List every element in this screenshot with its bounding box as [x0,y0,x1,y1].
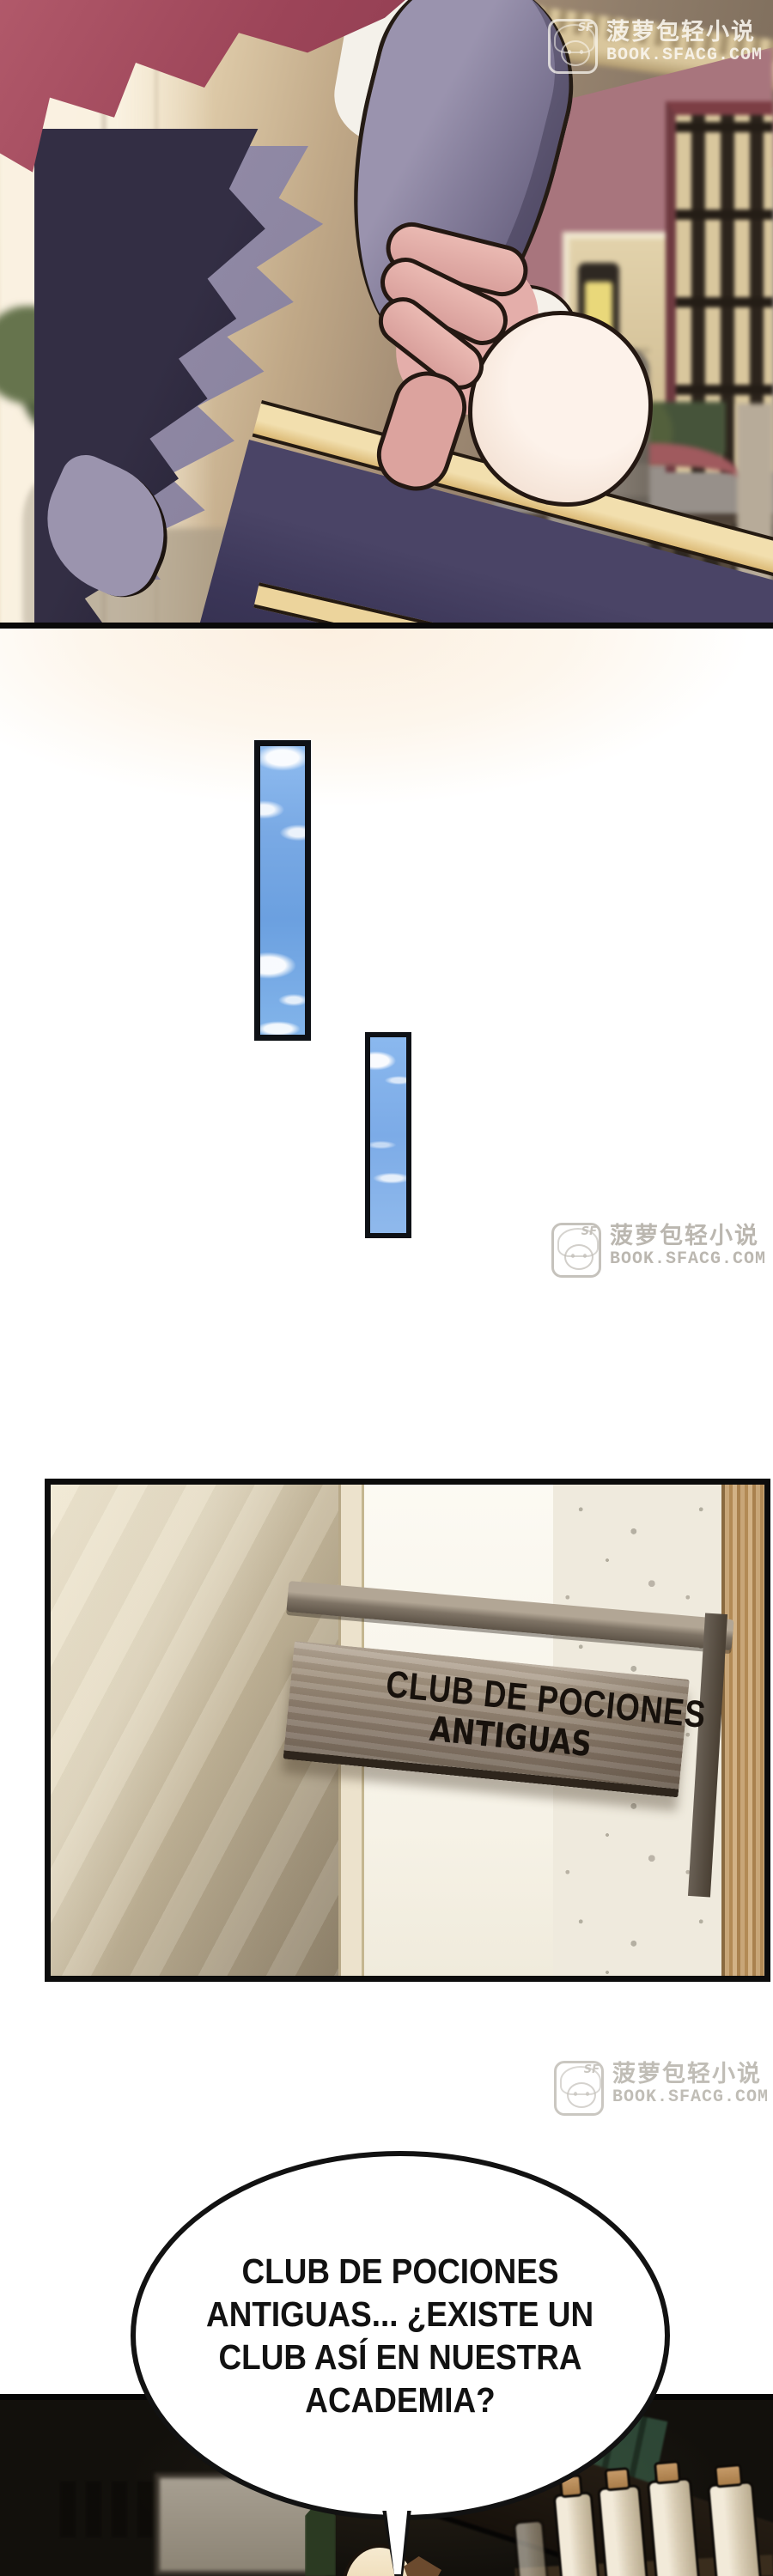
cork [604,2467,630,2491]
sfacg-logo-icon: SF [551,1223,601,1278]
speech-line: ACADEMIA? [305,2379,495,2421]
potion-bottle [553,2491,600,2576]
cork [714,2464,743,2488]
panel-club-door: CLUB DE POCIONES ANTIGUAS [45,1479,770,1982]
watermark-site-name: 菠萝包轻小说 [610,1223,766,1249]
sfacg-logo-icon: SF [554,2061,604,2116]
potion-bottle [597,2484,648,2576]
watermark-site-name: 菠萝包轻小说 [612,2061,769,2087]
sfacg-watermark: SF 菠萝包轻小说 BOOK.SFACG.COM [554,2061,769,2116]
webtoon-page: SF 菠萝包轻小说 BOOK.SFACG.COM SF 菠萝包轻小说 BOOK.… [0,0,773,2576]
page-glow [0,629,773,998]
sky-panel-2 [365,1032,411,1238]
panel-hand-scene: SF 菠萝包轻小说 BOOK.SFACG.COM [0,0,773,629]
speech-line: CLUB DE POCIONES [241,2250,558,2293]
watermark-site-url: BOOK.SFACG.COM [606,46,763,65]
speech-line: ANTIGUAS... ¿EXISTE UN [206,2293,593,2336]
potion-bottle [707,2481,762,2576]
potion-bottle [647,2477,700,2576]
watermark-site-name: 菠萝包轻小说 [606,19,763,46]
sf-monogram: SF [581,1225,597,1238]
sfacg-logo-icon: SF [548,19,598,74]
sfacg-watermark: SF 菠萝包轻小说 BOOK.SFACG.COM [548,19,763,74]
sf-monogram: SF [578,21,593,34]
watermark-site-url: BOOK.SFACG.COM [610,1249,766,1269]
chibi-face [564,1244,593,1270]
sky-panel-1 [254,740,311,1041]
shelf-bottles-silhouette [60,2482,155,2537]
potion-bottle [513,2519,549,2576]
chibi-face [567,2082,596,2108]
gold-trim-inner [253,582,619,629]
sfacg-watermark: SF 菠萝包轻小说 BOOK.SFACG.COM [551,1223,766,1278]
speech-line: CLUB ASÍ EN NUESTRA [219,2336,582,2379]
wood-pillar [721,1485,764,1976]
speech-bubble: CLUB DE POCIONES ANTIGUAS... ¿EXISTE UN … [131,2151,670,2520]
sf-monogram: SF [584,2063,600,2076]
chibi-face [561,40,590,66]
watermark-site-url: BOOK.SFACG.COM [612,2087,769,2107]
cork [654,2460,682,2485]
